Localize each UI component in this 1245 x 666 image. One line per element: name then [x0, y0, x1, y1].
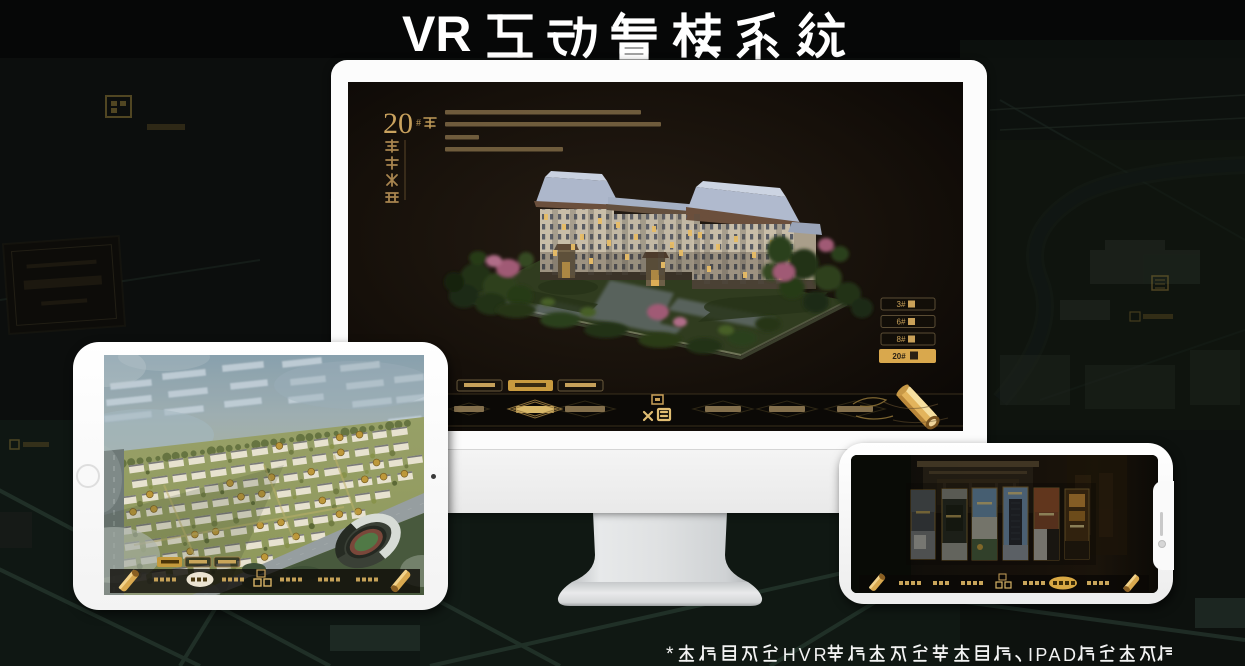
- svg-text:IPAD: IPAD: [1028, 645, 1078, 665]
- svg-text:3#: 3#: [897, 300, 906, 309]
- svg-text:6#: 6#: [897, 318, 906, 327]
- svg-text:20#: 20#: [892, 352, 906, 361]
- svg-text:20: 20: [383, 107, 413, 140]
- svg-text:HVR: HVR: [783, 645, 830, 665]
- svg-text:8#: 8#: [897, 335, 906, 344]
- svg-text:*: *: [666, 643, 674, 665]
- svg-text:#: #: [416, 118, 421, 129]
- svg-text:VR: VR: [402, 7, 471, 62]
